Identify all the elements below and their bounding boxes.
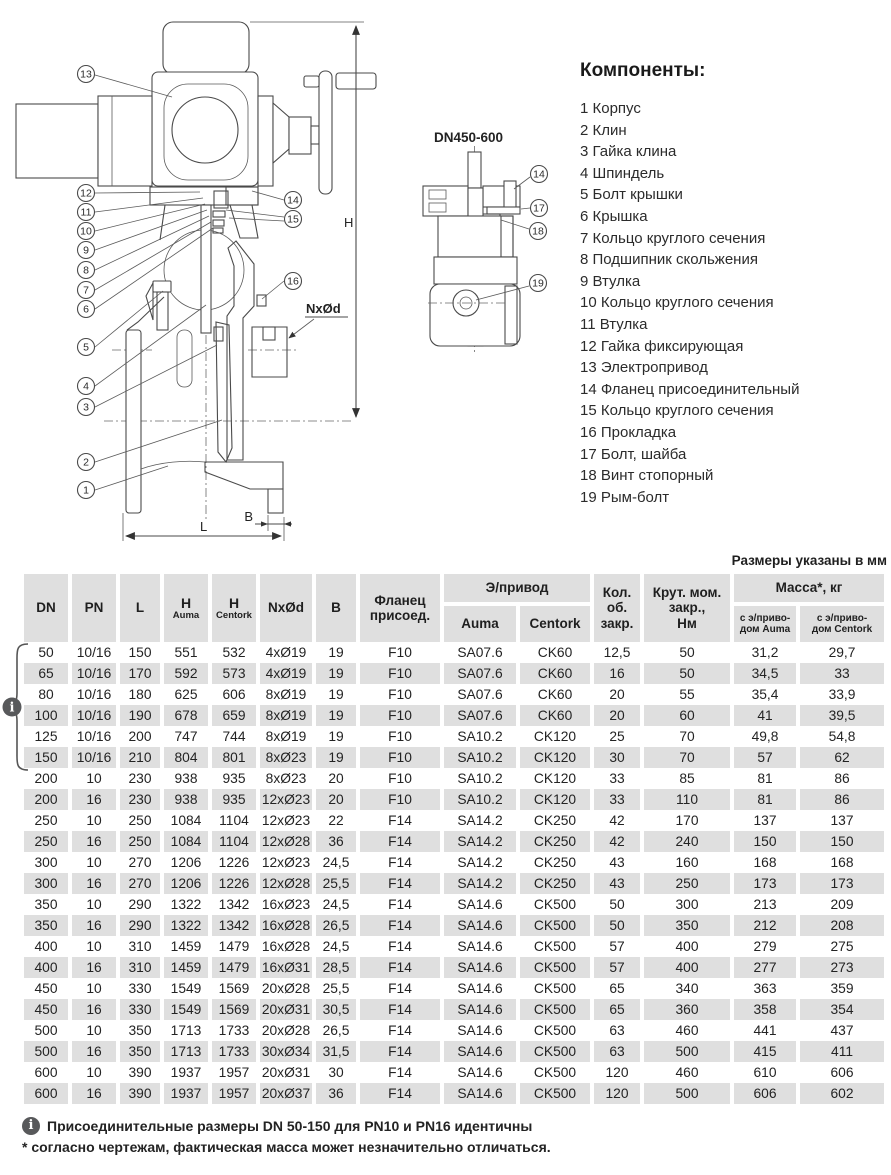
table-cell: F14 [360, 810, 440, 831]
footnote-info-text: Присоединительные размеры DN 50-150 для … [47, 1116, 532, 1136]
table-row: 8010/161806256068xØ1919F10SA07.6CK602055… [24, 684, 884, 705]
table-cell: 10 [72, 936, 116, 957]
table-cell: F14 [360, 1020, 440, 1041]
component-item: 19 Рым-болт [580, 487, 888, 509]
table-cell: 63 [594, 1020, 640, 1041]
table-cell: 120 [594, 1062, 640, 1083]
table-cell: 625 [164, 684, 208, 705]
svg-text:15: 15 [287, 214, 299, 226]
table-cell: 400 [644, 957, 730, 978]
table-cell: 359 [800, 978, 884, 999]
table-cell: 12xØ28 [260, 873, 312, 894]
table-cell: F14 [360, 999, 440, 1020]
table-cell: 20xØ28 [260, 1020, 312, 1041]
table-cell: 20xØ28 [260, 978, 312, 999]
dim-b-label: B [244, 509, 253, 524]
svg-text:11: 11 [81, 207, 92, 219]
table-cell: 57 [594, 936, 640, 957]
table-cell: SA10.2 [444, 747, 516, 768]
table-cell: 500 [644, 1041, 730, 1062]
table-cell: 1569 [212, 978, 256, 999]
table-row: 15010/162108048018xØ2319F10SA10.2CK12030… [24, 747, 884, 768]
table-cell: 300 [24, 852, 68, 873]
table-cell: 500 [24, 1041, 68, 1062]
table-cell: 400 [644, 936, 730, 957]
table-cell: SA07.6 [444, 684, 516, 705]
table-cell: 1549 [164, 999, 208, 1020]
col-header-l: L [120, 574, 160, 642]
col-header-auma: Auma [444, 606, 516, 642]
col-header-turns: Кол. об. закр. [594, 574, 640, 642]
callout-2: 2 [78, 454, 95, 471]
table-cell: 390 [120, 1062, 160, 1083]
electric-actuator [16, 22, 319, 186]
table-cell: 230 [120, 768, 160, 789]
detail-title: DN450-600 [434, 130, 503, 145]
table-cell: 25,5 [316, 873, 356, 894]
table-cell: 273 [800, 957, 884, 978]
callout-3: 3 [78, 399, 95, 416]
table-row: 10010/161906786598xØ1919F10SA07.6CK60206… [24, 705, 884, 726]
table-cell: 150 [734, 831, 796, 852]
table-cell: 744 [212, 726, 256, 747]
table-cell: 180 [120, 684, 160, 705]
table-cell: SA07.6 [444, 642, 516, 663]
table-cell: 19 [316, 726, 356, 747]
callout-11: 11 [78, 204, 95, 221]
table-row: 600163901937195720xØ3736F14SA14.6CK50012… [24, 1083, 884, 1104]
table-cell: 33 [800, 663, 884, 684]
table-cell: 16 [72, 1041, 116, 1062]
table-cell: 1479 [212, 957, 256, 978]
table-cell: 10 [72, 810, 116, 831]
table-cell: 16 [72, 957, 116, 978]
svg-text:5: 5 [83, 342, 89, 354]
table-cell: 57 [734, 747, 796, 768]
detail-callout-14: 14 [531, 166, 548, 183]
component-item: 17 Болт, шайба [580, 444, 888, 466]
table-cell: 168 [734, 852, 796, 873]
table-cell: 804 [164, 747, 208, 768]
svg-text:4: 4 [83, 381, 89, 393]
table-cell: 137 [734, 810, 796, 831]
table-cell: 350 [644, 915, 730, 936]
table-cell: 36 [316, 1083, 356, 1104]
table-cell: 29,7 [800, 642, 884, 663]
callout-1: 1 [78, 482, 95, 499]
table-cell: 43 [594, 873, 640, 894]
table-cell: F14 [360, 852, 440, 873]
table-cell: 747 [164, 726, 208, 747]
table-cell: 551 [164, 642, 208, 663]
table-cell: CK500 [520, 978, 590, 999]
table-cell: CK60 [520, 705, 590, 726]
table-cell: 1479 [212, 936, 256, 957]
table-cell: SA10.2 [444, 768, 516, 789]
table-cell: 592 [164, 663, 208, 684]
table-cell: SA14.2 [444, 852, 516, 873]
table-cell: 290 [120, 894, 160, 915]
component-item: 5 Болт крышки [580, 184, 888, 206]
callout-13: 13 [78, 66, 95, 83]
table-cell: 4xØ19 [260, 642, 312, 663]
table-cell: 1104 [212, 831, 256, 852]
h-sub-centork: Centork [212, 611, 256, 621]
table-cell: 363 [734, 978, 796, 999]
table-cell: F14 [360, 1062, 440, 1083]
table-cell: 39,5 [800, 705, 884, 726]
table-cell: 1206 [164, 873, 208, 894]
table-cell: CK500 [520, 1041, 590, 1062]
table-cell: SA14.6 [444, 1041, 516, 1062]
table-cell: 209 [800, 894, 884, 915]
table-cell: 678 [164, 705, 208, 726]
table-cell: 354 [800, 999, 884, 1020]
table-cell: SA07.6 [444, 705, 516, 726]
svg-text:18: 18 [532, 226, 544, 238]
table-cell: 8xØ23 [260, 747, 312, 768]
table-cell: 1459 [164, 936, 208, 957]
table-cell: 65 [594, 999, 640, 1020]
col-header-mass-auma: с э/приво- дом Auma [734, 606, 796, 642]
table-cell: F14 [360, 1041, 440, 1062]
svg-text:10: 10 [80, 226, 92, 238]
info-icon: i [22, 1117, 40, 1135]
table-cell: F10 [360, 747, 440, 768]
table-cell: 30xØ34 [260, 1041, 312, 1062]
table-cell: 86 [800, 789, 884, 810]
table-cell: CK500 [520, 894, 590, 915]
detail-diagram-dn450-600: DN450-600 14 [423, 130, 548, 352]
table-cell: 62 [800, 747, 884, 768]
table-cell: SA07.6 [444, 663, 516, 684]
table-cell: 60 [644, 705, 730, 726]
table-cell: 606 [212, 684, 256, 705]
table-cell: CK500 [520, 936, 590, 957]
table-cell: 70 [644, 747, 730, 768]
svg-text:14: 14 [533, 169, 545, 181]
table-cell: 1733 [212, 1020, 256, 1041]
table-cell: 400 [24, 936, 68, 957]
callout-16: 16 [285, 273, 302, 290]
table-cell: F10 [360, 789, 440, 810]
table-cell: 170 [644, 810, 730, 831]
component-item: 3 Гайка клина [580, 141, 888, 163]
table-cell: F10 [360, 663, 440, 684]
table-row: 500163501713173330xØ3431,5F14SA14.6CK500… [24, 1041, 884, 1062]
table-cell: 277 [734, 957, 796, 978]
table-cell: 43 [594, 852, 640, 873]
table-cell: 1226 [212, 873, 256, 894]
table-cell: 600 [24, 1083, 68, 1104]
table-cell: 212 [734, 915, 796, 936]
table-cell: F10 [360, 768, 440, 789]
col-header-pn: PN [72, 574, 116, 642]
table-cell: F14 [360, 915, 440, 936]
svg-text:2: 2 [83, 457, 89, 469]
table-cell: 16 [72, 873, 116, 894]
table-cell: CK120 [520, 768, 590, 789]
table-cell: 200 [24, 789, 68, 810]
table-cell: 300 [644, 894, 730, 915]
table-cell: 1084 [164, 810, 208, 831]
table-cell: 208 [800, 915, 884, 936]
dn-group-bracket: i [2, 641, 28, 773]
table-cell: CK60 [520, 663, 590, 684]
table-cell: 8xØ19 [260, 684, 312, 705]
table-cell: 35,4 [734, 684, 796, 705]
component-item: 7 Кольцо круглого сечения [580, 228, 888, 250]
table-cell: 54,8 [800, 726, 884, 747]
table-cell: SA10.2 [444, 789, 516, 810]
table-cell: 19 [316, 663, 356, 684]
callout-5: 5 [78, 339, 95, 356]
table-cell: 42 [594, 831, 640, 852]
table-cell: CK120 [520, 726, 590, 747]
table-cell: 1733 [212, 1041, 256, 1062]
table-cell: 20 [594, 684, 640, 705]
table-cell: 358 [734, 999, 796, 1020]
table-cell: 279 [734, 936, 796, 957]
components-list-panel: Компоненты: 1 Корпус2 Клин3 Гайка клина4… [580, 60, 888, 508]
table-cell: SA14.2 [444, 873, 516, 894]
table-cell: 1569 [212, 999, 256, 1020]
table-cell: 12xØ23 [260, 810, 312, 831]
callout-10: 10 [78, 223, 95, 240]
table-cell: 10 [72, 1020, 116, 1041]
component-item: 1 Корпус [580, 98, 888, 120]
table-cell: F10 [360, 705, 440, 726]
col-header-flange: Фланец присоед. [360, 574, 440, 642]
table-row: 300162701206122612xØ2825,5F14SA14.2CK250… [24, 873, 884, 894]
component-item: 10 Кольцо круглого сечения [580, 292, 888, 314]
table-cell: F14 [360, 1083, 440, 1104]
table-cell: F10 [360, 642, 440, 663]
table-cell: 120 [594, 1083, 640, 1104]
svg-text:17: 17 [533, 203, 545, 215]
footnote-asterisk: * согласно чертежам, фактическая масса м… [22, 1136, 622, 1158]
table-cell: 350 [24, 894, 68, 915]
table-cell: 500 [24, 1020, 68, 1041]
table-row: 5010/161505515324xØ1919F10SA07.6CK6012,5… [24, 642, 884, 663]
table-cell: 290 [120, 915, 160, 936]
component-item: 12 Гайка фиксирующая [580, 336, 888, 358]
table-cell: 173 [734, 873, 796, 894]
nxod-label: NxØd [306, 301, 341, 316]
table-cell: 1957 [212, 1062, 256, 1083]
h-label: H [164, 596, 208, 610]
table-cell: SA14.6 [444, 1062, 516, 1083]
table-cell: 16 [72, 1083, 116, 1104]
table-cell: 500 [644, 1083, 730, 1104]
table-cell: 240 [644, 831, 730, 852]
component-item: 9 Втулка [580, 271, 888, 293]
table-cell: 10/16 [72, 747, 116, 768]
table-cell: 659 [212, 705, 256, 726]
table-cell: 1206 [164, 852, 208, 873]
table-cell: 1713 [164, 1020, 208, 1041]
table-cell: 1322 [164, 894, 208, 915]
table-cell: 170 [120, 663, 160, 684]
table-cell: CK500 [520, 1020, 590, 1041]
table-cell: 4xØ19 [260, 663, 312, 684]
table-cell: 200 [120, 726, 160, 747]
table-cell: 1713 [164, 1041, 208, 1062]
table-cell: 26,5 [316, 915, 356, 936]
table-cell: 602 [800, 1083, 884, 1104]
table-cell: 26,5 [316, 1020, 356, 1041]
table-cell: 10 [72, 978, 116, 999]
table-cell: CK250 [520, 831, 590, 852]
table-cell: 350 [24, 915, 68, 936]
table-cell: 437 [800, 1020, 884, 1041]
svg-text:19: 19 [532, 278, 544, 290]
table-cell: 330 [120, 999, 160, 1020]
table-cell: 10/16 [72, 663, 116, 684]
table-cell: 801 [212, 747, 256, 768]
table-cell: 16 [72, 999, 116, 1020]
table-cell: 340 [644, 978, 730, 999]
table-cell: 33,9 [800, 684, 884, 705]
col-group-mass: Масса*, кг [734, 574, 884, 606]
table-cell: 600 [24, 1062, 68, 1083]
table-cell: 70 [644, 726, 730, 747]
table-row: 6510/161705925734xØ1919F10SA07.6CK601650… [24, 663, 884, 684]
callout-7: 7 [78, 282, 95, 299]
col-header-h-auma: H Auma [164, 574, 208, 642]
table-cell: 935 [212, 789, 256, 810]
table-cell: 1549 [164, 978, 208, 999]
table-cell: 22 [316, 810, 356, 831]
datasheet-page: H L B NxØd [0, 0, 891, 1175]
table-cell: 606 [734, 1083, 796, 1104]
table-cell: CK500 [520, 957, 590, 978]
table-cell: SA14.6 [444, 978, 516, 999]
table-row: 200102309389358xØ2320F10SA10.2CK12033858… [24, 768, 884, 789]
table-cell: SA14.6 [444, 957, 516, 978]
table-cell: 610 [734, 1062, 796, 1083]
table-cell: F14 [360, 957, 440, 978]
table-cell: CK500 [520, 1062, 590, 1083]
component-item: 16 Прокладка [580, 422, 888, 444]
table-cell: 24,5 [316, 852, 356, 873]
table-cell: 20xØ37 [260, 1083, 312, 1104]
table-cell: 310 [120, 936, 160, 957]
table-cell: 10/16 [72, 705, 116, 726]
table-cell: 330 [120, 978, 160, 999]
components-title: Компоненты: [580, 60, 888, 82]
table-row: 400163101459147916xØ3128,5F14SA14.6CK500… [24, 957, 884, 978]
table-cell: 400 [24, 957, 68, 978]
table-cell: 350 [120, 1041, 160, 1062]
component-item: 8 Подшипник скольжения [580, 249, 888, 271]
svg-text:14: 14 [287, 195, 299, 207]
table-cell: 31,2 [734, 642, 796, 663]
table-cell: 300 [24, 873, 68, 894]
table-cell: 12xØ23 [260, 789, 312, 810]
table-cell: 31,5 [316, 1041, 356, 1062]
component-item: 2 Клин [580, 120, 888, 142]
svg-text:7: 7 [83, 285, 89, 297]
detail-callout-17: 17 [531, 200, 548, 217]
table-cell: 16xØ28 [260, 915, 312, 936]
table-cell: 230 [120, 789, 160, 810]
table-cell: 110 [644, 789, 730, 810]
callout-8: 8 [78, 262, 95, 279]
table-cell: 50 [594, 915, 640, 936]
table-cell: 190 [120, 705, 160, 726]
table-cell: 34,5 [734, 663, 796, 684]
table-cell: 213 [734, 894, 796, 915]
table-cell: 137 [800, 810, 884, 831]
table-cell: 33 [594, 768, 640, 789]
table-cell: 86 [800, 768, 884, 789]
table-cell: 460 [644, 1020, 730, 1041]
table-cell: 150 [24, 747, 68, 768]
table-cell: CK250 [520, 852, 590, 873]
table-cell: F14 [360, 831, 440, 852]
table-cell: CK250 [520, 873, 590, 894]
table-cell: 49,8 [734, 726, 796, 747]
table-cell: 350 [120, 1020, 160, 1041]
dim-l-label: L [200, 519, 207, 534]
table-cell: 150 [800, 831, 884, 852]
table-cell: 50 [594, 894, 640, 915]
table-row: 2001623093893512xØ2320F10SA10.2CK1203311… [24, 789, 884, 810]
table-cell: 33 [594, 789, 640, 810]
table-cell: 41 [734, 705, 796, 726]
table-cell: 24,5 [316, 894, 356, 915]
table-cell: F14 [360, 894, 440, 915]
footnotes: i Присоединительные размеры DN 50-150 дл… [22, 1116, 622, 1158]
table-cell: SA14.6 [444, 936, 516, 957]
components-list: 1 Корпус2 Клин3 Гайка клина4 Шпиндель5 Б… [580, 98, 888, 508]
table-cell: 20 [316, 789, 356, 810]
table-row: 500103501713173320xØ2826,5F14SA14.6CK500… [24, 1020, 884, 1041]
units-note: Размеры указаны в мм [732, 553, 887, 568]
valve-cross-section-diagram: H L B NxØd [0, 0, 575, 555]
footnote-info: i Присоединительные размеры DN 50-150 дл… [22, 1116, 622, 1136]
h-sub-auma: Auma [164, 611, 208, 621]
table-cell: 16 [594, 663, 640, 684]
table-cell: 168 [800, 852, 884, 873]
callout-6: 6 [78, 301, 95, 318]
table-cell: 250 [24, 810, 68, 831]
table-cell: SA10.2 [444, 726, 516, 747]
table-cell: 25 [594, 726, 640, 747]
svg-text:6: 6 [83, 304, 89, 316]
table-row: 350162901322134216xØ2826,5F14SA14.6CK500… [24, 915, 884, 936]
table-cell: 1937 [164, 1062, 208, 1083]
table-cell: 1342 [212, 915, 256, 936]
table-cell: 938 [164, 789, 208, 810]
table-cell: 938 [164, 768, 208, 789]
table-body: 5010/161505515324xØ1919F10SA07.6CK6012,5… [24, 642, 884, 1104]
table-cell: 10/16 [72, 642, 116, 663]
table-cell: 65 [594, 978, 640, 999]
table-cell: 55 [644, 684, 730, 705]
callout-4: 4 [78, 378, 95, 395]
table-cell: 57 [594, 957, 640, 978]
table-cell: 30,5 [316, 999, 356, 1020]
table-cell: 63 [594, 1041, 640, 1062]
table-cell: 19 [316, 684, 356, 705]
table-cell: 16 [72, 915, 116, 936]
table-cell: 1459 [164, 957, 208, 978]
component-item: 18 Винт стопорный [580, 465, 888, 487]
bolt-holes-label: NxØd [289, 301, 348, 338]
table-cell: SA14.6 [444, 1083, 516, 1104]
